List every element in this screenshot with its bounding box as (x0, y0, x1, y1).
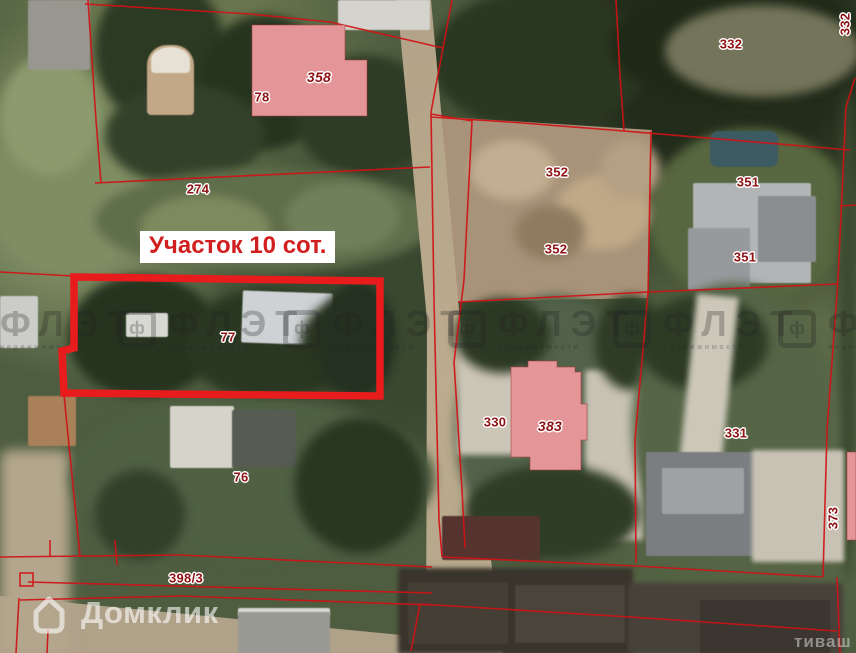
satellite-map-canvas: ф ФЛЭТ недвижимости ф ФЛЭТ недвижимости … (0, 0, 856, 653)
parcel-label-351-b: 351 (734, 250, 757, 265)
parcel-label-330: 330 (484, 415, 507, 430)
domclick-house-icon (26, 590, 72, 636)
parcel-label-78: 78 (254, 90, 269, 105)
parcel-label-77: 77 (220, 330, 235, 345)
parcel-label-274: 274 (187, 182, 210, 197)
domclick-watermark: Домклик (26, 590, 219, 636)
parcel-label-358: 358 (307, 69, 331, 85)
parcel-label-76: 76 (233, 470, 248, 485)
parcel-label-352-b: 352 (545, 242, 568, 257)
parcel-label-351-a: 351 (737, 175, 760, 190)
corner-watermark-fragment: тиваш (794, 632, 852, 652)
parcel-label-332-b: 332 (838, 13, 853, 36)
highlighted-plot-layer (0, 0, 856, 653)
plot-size-callout: Участок 10 сот. (140, 231, 335, 263)
parcel-label-352-a: 352 (546, 165, 569, 180)
parcel-label-332-a: 332 (720, 37, 743, 52)
parcel-label-398-3: 398/3 (169, 571, 203, 586)
parcel-label-331: 331 (725, 426, 748, 441)
parcel-label-373: 373 (826, 507, 841, 530)
domclick-watermark-text: Домклик (81, 595, 219, 631)
parcel-label-383: 383 (538, 418, 562, 434)
